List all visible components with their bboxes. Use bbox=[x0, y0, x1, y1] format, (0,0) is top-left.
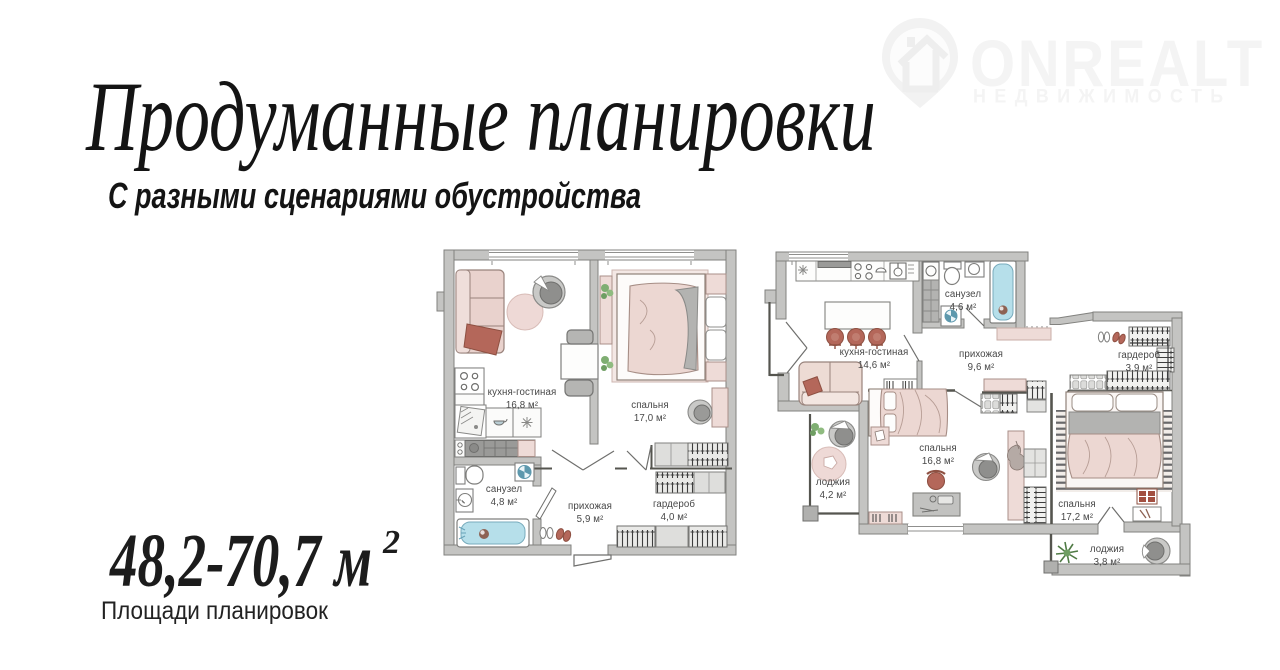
svg-text:3,8 м²: 3,8 м² bbox=[1094, 557, 1121, 568]
svg-text:4,6 м²: 4,6 м² bbox=[950, 302, 977, 313]
svg-text:14,6 м²: 14,6 м² bbox=[858, 360, 891, 371]
svg-text:4,0 м²: 4,0 м² bbox=[661, 512, 688, 523]
svg-text:спальня: спальня bbox=[919, 443, 956, 454]
svg-text:16,8 м²: 16,8 м² bbox=[922, 456, 955, 467]
svg-text:4,8 м²: 4,8 м² bbox=[491, 497, 518, 508]
svg-text:17,0 м²: 17,0 м² bbox=[634, 413, 667, 424]
svg-text:9,6 м²: 9,6 м² bbox=[968, 362, 995, 373]
svg-text:гардероб: гардероб bbox=[1118, 350, 1160, 361]
svg-text:3,9 м²: 3,9 м² bbox=[1126, 363, 1153, 374]
svg-text:санузел: санузел bbox=[486, 484, 522, 495]
svg-text:лоджия: лоджия bbox=[816, 477, 850, 488]
svg-text:прихожая: прихожая bbox=[568, 501, 612, 512]
svg-text:гардероб: гардероб bbox=[653, 499, 695, 510]
svg-text:прихожая: прихожая bbox=[959, 349, 1003, 360]
svg-text:16,8 м²: 16,8 м² bbox=[506, 400, 539, 411]
svg-text:лоджия: лоджия bbox=[1090, 544, 1124, 555]
svg-text:спальня: спальня bbox=[1058, 499, 1095, 510]
svg-text:5,9 м²: 5,9 м² bbox=[577, 514, 604, 525]
svg-text:4,2 м²: 4,2 м² bbox=[820, 490, 847, 501]
svg-text:кухня-гостиная: кухня-гостиная bbox=[840, 347, 909, 358]
svg-text:санузел: санузел bbox=[945, 289, 981, 300]
svg-text:НЕДВИЖИМОСТЬ: НЕДВИЖИМОСТЬ bbox=[973, 85, 1232, 107]
svg-text:кухня-гостиная: кухня-гостиная bbox=[488, 387, 557, 398]
svg-text:17,2 м²: 17,2 м² bbox=[1061, 512, 1094, 523]
svg-text:спальня: спальня bbox=[631, 400, 668, 411]
